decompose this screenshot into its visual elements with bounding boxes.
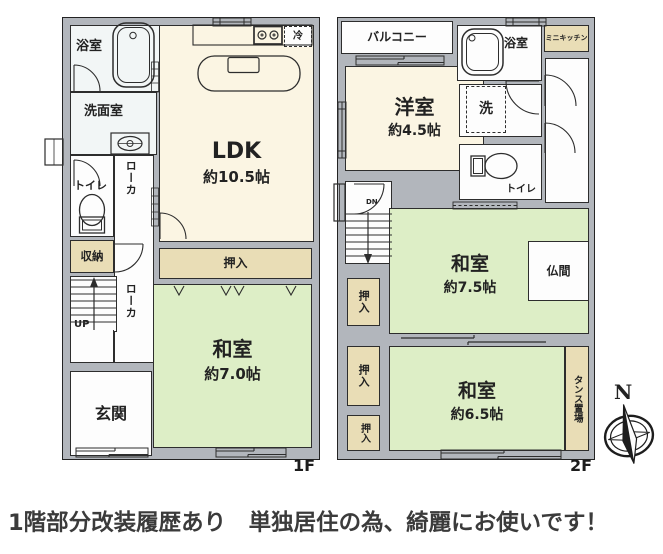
hall-1f: [70, 330, 114, 363]
washitsu-1f-size-label: 約7.0帖: [154, 365, 311, 383]
room-toilet-1f: トイレ: [70, 155, 114, 237]
compass: N: [600, 380, 660, 466]
room-ldk-1f: LDK 約10.5帖: [159, 25, 314, 242]
room-mini-kitchen-2f: ミニキッチン: [544, 25, 589, 52]
room-balcony-2f: バルコニー: [341, 21, 453, 54]
room-bathroom-1f: 浴室: [70, 25, 160, 92]
storage-1f-label: 収納: [81, 250, 104, 264]
refrigerator-icon: 冷: [284, 26, 312, 47]
room-closet-1f: 押入: [159, 248, 312, 279]
bathroom-2f-label: 浴室: [504, 36, 528, 50]
corridor-1f-label-lower: ローカ: [124, 283, 137, 319]
closet1-2f-label: 押入: [357, 290, 370, 314]
washitsu-b-label: 和室: [390, 380, 564, 403]
floorplan-page: 浴室 洗面室 トイレ ローカ ローカ 収納 UP 玄関 LDK 約10.5帖 冷…: [0, 0, 663, 554]
compass-rose-icon: [600, 400, 660, 466]
washitsu-a-label: 和室: [410, 253, 530, 276]
room-washitsu-1f: 和室 約7.0帖: [153, 284, 312, 448]
stairs-down-label: DN: [366, 198, 378, 206]
laundry-label: 洗: [479, 101, 493, 118]
tansu-label: タンス置場: [571, 375, 582, 423]
washitsu-1f-label: 和室: [154, 337, 311, 361]
room-tansu-2f: タンス置場: [565, 346, 589, 451]
corridor-2f: [545, 58, 589, 203]
toilet-2f-label: トイレ: [506, 184, 536, 196]
washitsu-a-size-label: 約7.5帖: [410, 280, 530, 297]
floor1-label: 1F: [293, 456, 315, 475]
room-butsuma-2f: 仏間: [528, 241, 589, 301]
refrigerator-label: 冷: [293, 31, 303, 43]
butsuma-label: 仏間: [546, 264, 570, 278]
room-washitsu-b-2f: 和室 約6.5帖: [389, 346, 565, 451]
room-bathroom-2f: [457, 25, 542, 81]
room-closet2-2f: 押入: [347, 346, 380, 406]
washing-machine-icon: 洗: [466, 86, 506, 133]
toilet-1f-label: トイレ: [74, 179, 107, 192]
mini-kitchen-label: ミニキッチン: [546, 34, 588, 42]
floorplan-2f: バルコニー 洋室 約4.5帖 浴室 ミニキッチン 洗 トイレ DN 押入 押入 …: [337, 17, 595, 460]
room-entrance-1f: 玄関: [70, 371, 152, 456]
room-closet1-2f: 押入: [347, 278, 380, 326]
closet2-2f-label: 押入: [357, 364, 370, 388]
closet3-2f-label: 押入: [358, 423, 370, 443]
closet-1f-label: 押入: [223, 256, 247, 270]
room-washroom-1f: 洗面室: [70, 92, 157, 155]
balcony-label: バルコニー: [367, 30, 427, 44]
washitsu-b-size-label: 約6.5帖: [390, 407, 564, 424]
stairs-2f: [345, 181, 392, 264]
corridor-1f-label-upper: ローカ: [124, 160, 137, 196]
room-closet3-2f: 押入: [347, 415, 380, 451]
bathroom-1f-label: 浴室: [76, 39, 102, 55]
ldk-size-label: 約10.5帖: [160, 168, 313, 186]
room-storage-1f: 収納: [70, 240, 114, 273]
floorplan-1f: 浴室 洗面室 トイレ ローカ ローカ 収納 UP 玄関 LDK 約10.5帖 冷…: [62, 17, 320, 460]
ldk-label: LDK: [160, 139, 313, 165]
caption-text: 1階部分改装履歴あり 単独居住の為、綺麗にお使いです！: [8, 505, 660, 537]
washroom-1f-label: 洗面室: [84, 104, 123, 120]
floor2-label: 2F: [570, 456, 592, 475]
entrance-label: 玄関: [95, 404, 127, 423]
